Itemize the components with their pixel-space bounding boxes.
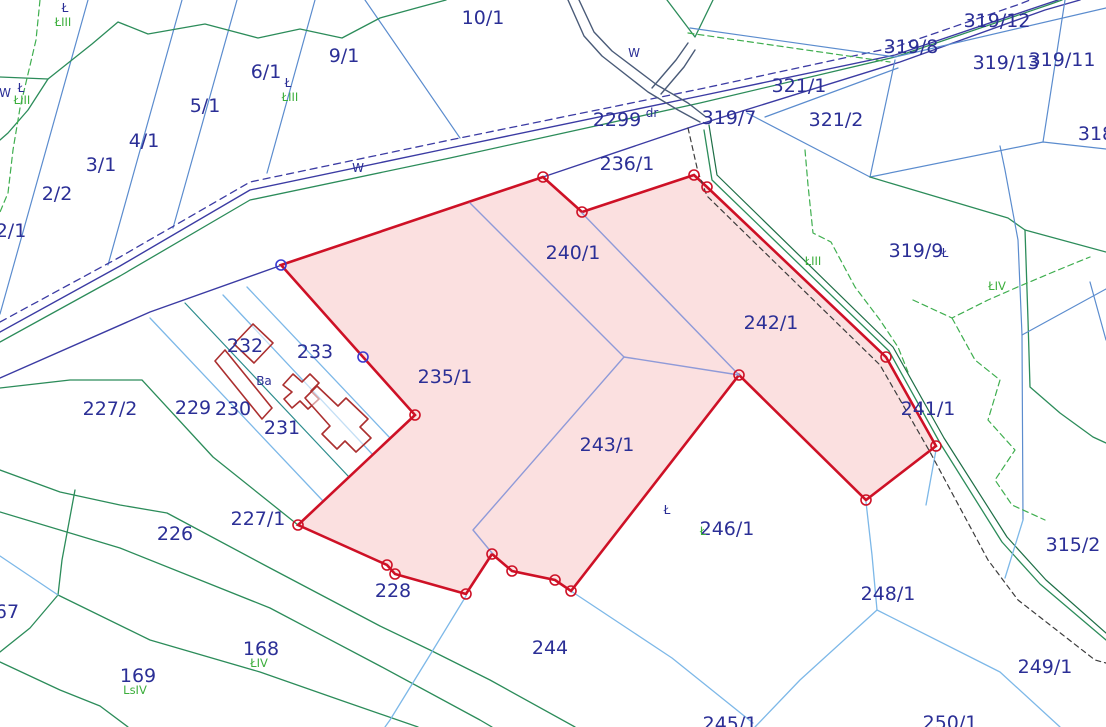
map-label-319-12: 319/12 [964, 10, 1031, 32]
map-label-235-1: 235/1 [418, 366, 473, 388]
selection-group [281, 175, 936, 594]
map-label-229: 229 [175, 397, 211, 419]
map-label-315-2: 315/2 [1046, 534, 1101, 556]
map-label-319-7: 319/7 [702, 107, 757, 129]
map-label-2-2: 2/2 [42, 183, 73, 205]
map-label-4-1: 4/1 [129, 130, 160, 152]
map-label-5-1: 5/1 [190, 95, 221, 117]
selected-parcels-polygon[interactable] [281, 175, 936, 594]
map-label-Ł: Ł [699, 524, 707, 538]
building-outline [305, 386, 371, 452]
map-label-Ł: Ł [61, 1, 69, 15]
map-label-2299: 2299 [593, 109, 641, 131]
cadastral-map-viewport[interactable]: 10/19/16/15/14/13/12/22/12299236/1319/73… [0, 0, 1106, 727]
map-label-ŁIV: ŁIV [249, 656, 268, 670]
map-label-2-1: 2/1 [0, 220, 26, 242]
map-label-319-9: 319/9 [889, 240, 944, 262]
map-label-248-1: 248/1 [861, 583, 916, 605]
cadastral-map: 10/19/16/15/14/13/12/22/12299236/1319/73… [0, 0, 1106, 727]
map-label-dr: dr [646, 106, 659, 120]
map-label-9-1: 9/1 [329, 45, 360, 67]
map-label-321-2: 321/2 [809, 109, 864, 131]
map-label-240-1: 240/1 [546, 242, 601, 264]
map-label-227-2: 227/2 [83, 398, 138, 420]
map-label-233: 233 [297, 341, 333, 363]
map-label-ŁIV: ŁIV [987, 279, 1006, 293]
map-label-242-1: 242/1 [744, 312, 799, 334]
map-label-232: 232 [227, 335, 263, 357]
map-label-244: 244 [532, 637, 568, 659]
map-label-ŁIII: ŁIII [281, 90, 299, 104]
map-label-LsIV: LsIV [123, 683, 147, 697]
map-label-321-1: 321/1 [772, 75, 827, 97]
map-label-250-1: 250/1 [923, 712, 978, 727]
map-label-226: 226 [157, 523, 193, 545]
map-label-243-1: 243/1 [580, 434, 635, 456]
map-label-ŁIII: ŁIII [804, 254, 822, 268]
map-label-10-1: 10/1 [462, 7, 505, 29]
map-label-245-1: 245/1 [703, 713, 758, 727]
map-label-249-1: 249/1 [1018, 656, 1073, 678]
map-label-W: W [0, 86, 11, 100]
map-label-W: W [352, 161, 364, 175]
map-label-ŁIII: ŁIII [13, 93, 31, 107]
map-label-ŁIII: ŁIII [54, 15, 72, 29]
map-label-246-1: 246/1 [700, 518, 755, 540]
map-label-W: W [628, 46, 640, 60]
map-label-318: 318 [1078, 123, 1106, 145]
map-label-6-1: 6/1 [251, 61, 282, 83]
map-label-Ł: Ł [284, 76, 292, 90]
map-label-231: 231 [264, 417, 300, 439]
map-label-230: 230 [215, 398, 251, 420]
map-label-67: 67 [0, 601, 19, 623]
map-label-319-11: 319/11 [1029, 49, 1096, 71]
map-label-241-1: 241/1 [901, 398, 956, 420]
stream [568, 0, 713, 122]
map-label-Ł: Ł [663, 503, 671, 517]
map-label-Ł: Ł [941, 246, 949, 260]
map-label-236-1: 236/1 [600, 153, 655, 175]
map-label-228: 228 [375, 580, 411, 602]
map-label-227-1: 227/1 [231, 508, 286, 530]
map-label-Ba: Ba [256, 374, 272, 388]
map-label-3-1: 3/1 [86, 154, 117, 176]
green-boundaries-northwest [0, 0, 446, 212]
map-label-319-8: 319/8 [884, 36, 939, 58]
